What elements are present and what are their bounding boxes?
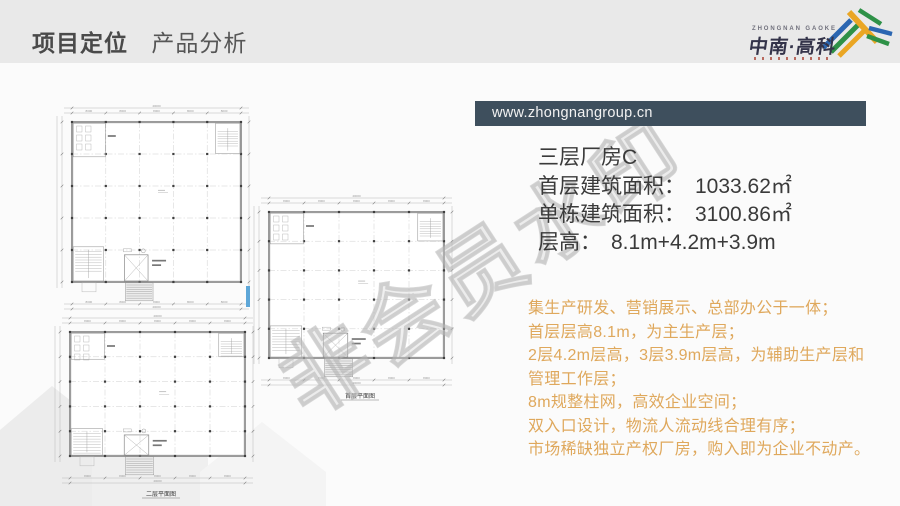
svg-text:8000: 8000 — [153, 109, 160, 113]
svg-text:40000: 40000 — [352, 381, 361, 385]
page-title-secondary: 产品分析 — [151, 30, 247, 56]
svg-text:40000: 40000 — [352, 194, 361, 198]
svg-text:8000: 8000 — [187, 109, 194, 113]
svg-text:8000: 8000 — [189, 474, 196, 478]
svg-text:首层平面图: 首层平面图 — [345, 392, 375, 400]
floor-plan-3: 8000800080008000800040000800080008000800… — [52, 312, 258, 502]
svg-text:8000: 8000 — [154, 474, 161, 478]
spec-row-storey-height: 层高：8.1m+4.2m+3.9m — [538, 229, 792, 257]
svg-text:8000: 8000 — [84, 319, 91, 323]
product-info: 三层厂房C 首层建筑面积：1033.62㎡ 单栋建筑面积：3100.86㎡ 层高… — [538, 144, 792, 257]
svg-text:8000: 8000 — [353, 376, 360, 380]
svg-text:8000: 8000 — [423, 376, 430, 380]
svg-text:8000: 8000 — [423, 199, 430, 203]
banner-url-text: www.zhongnangroup.cn — [492, 105, 653, 121]
feature-list: 集生产研发、营销展示、总部办公于一体； 首层层高8.1m，为主生产层； 2层4.… — [528, 297, 870, 462]
svg-text:40000: 40000 — [153, 314, 162, 318]
feature-line: 首层层高8.1m，为主生产层； — [528, 321, 870, 345]
svg-text:40000: 40000 — [152, 305, 161, 309]
svg-text:8000: 8000 — [224, 474, 231, 478]
logo-name-cn: 中南·高科 — [747, 32, 838, 59]
product-title: 三层厂房C — [538, 144, 792, 172]
spec-label: 单栋建筑面积： — [538, 203, 685, 226]
svg-text:8000: 8000 — [353, 199, 360, 203]
svg-text:8000: 8000 — [84, 474, 91, 478]
svg-text:8000: 8000 — [189, 319, 196, 323]
svg-text:8000: 8000 — [119, 319, 126, 323]
blue-marker — [246, 286, 250, 307]
slide: 项目定位 产品分析 ZHONGNAN GAOKE 中南·高科 800080008… — [0, 0, 900, 506]
svg-text:8000: 8000 — [154, 319, 161, 323]
svg-text:8000: 8000 — [119, 109, 126, 113]
logo-tagline-dots — [754, 57, 830, 60]
svg-text:8000: 8000 — [318, 199, 325, 203]
spec-label: 层高： — [538, 231, 601, 254]
page-title-primary: 项目定位 — [32, 30, 128, 56]
feature-line: 市场稀缺独立产权厂房，购入即为企业不动产。 — [528, 438, 870, 462]
svg-text:8000: 8000 — [153, 300, 160, 304]
spec-value: 3100.86㎡ — [695, 203, 792, 226]
svg-text:8000: 8000 — [221, 300, 228, 304]
svg-text:二层平面图: 二层平面图 — [146, 491, 176, 498]
svg-text:8000: 8000 — [388, 376, 395, 380]
svg-text:40000: 40000 — [153, 479, 162, 483]
spec-row-floor-area: 首层建筑面积：1033.62㎡ — [538, 173, 792, 201]
feature-line: 集生产研发、营销展示、总部办公于一体； — [528, 297, 870, 321]
url-banner: www.zhongnangroup.cn — [475, 101, 866, 126]
svg-text:8000: 8000 — [221, 109, 228, 113]
svg-text:8000: 8000 — [187, 300, 194, 304]
svg-text:8000: 8000 — [283, 199, 290, 203]
svg-text:40000: 40000 — [152, 104, 161, 108]
floor-plan-2: 8000800080008000800040000800080008000800… — [251, 192, 457, 404]
floor-plan-1: 8000800080008000800040000800080008000800… — [54, 102, 254, 312]
svg-text:8000: 8000 — [86, 109, 93, 113]
feature-line: 管理工作层； — [528, 368, 870, 392]
feature-line: 2层4.2m层高，3层3.9m层高，为辅助生产层和 — [528, 344, 870, 368]
header-bar: 项目定位 产品分析 ZHONGNAN GAOKE 中南·高科 — [0, 0, 900, 63]
spec-label: 首层建筑面积： — [538, 175, 685, 198]
company-logo: ZHONGNAN GAOKE 中南·高科 — [745, 2, 897, 62]
spec-value: 1033.62㎡ — [695, 175, 792, 198]
page-title: 项目定位 产品分析 — [32, 24, 247, 58]
svg-text:8000: 8000 — [283, 376, 290, 380]
spec-value: 8.1m+4.2m+3.9m — [611, 231, 776, 254]
svg-text:8000: 8000 — [388, 199, 395, 203]
spec-row-building-area: 单栋建筑面积：3100.86㎡ — [538, 201, 792, 229]
feature-line: 8m规整柱网，高效企业空间； — [528, 391, 870, 415]
svg-text:8000: 8000 — [86, 300, 93, 304]
svg-text:8000: 8000 — [224, 319, 231, 323]
feature-line: 双入口设计，物流人流动线合理有序； — [528, 415, 870, 439]
